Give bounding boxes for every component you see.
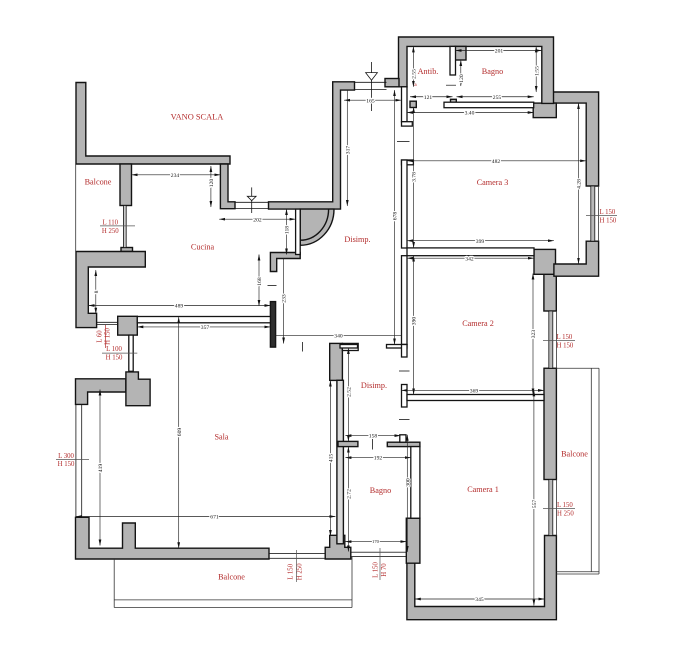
svg-text:Camera 2: Camera 2 (462, 319, 494, 328)
svg-text:323: 323 (531, 330, 537, 339)
svg-text:Camera 1: Camera 1 (467, 485, 499, 494)
svg-text:192: 192 (374, 456, 383, 462)
svg-text:357: 357 (201, 325, 210, 331)
svg-text:170: 170 (372, 539, 380, 544)
svg-text:H 150: H 150 (58, 461, 75, 468)
svg-text:165: 165 (366, 98, 375, 104)
svg-text:Disimp.: Disimp. (344, 235, 370, 244)
svg-text:3.78: 3.78 (412, 172, 418, 182)
svg-text:VANO SCALA: VANO SCALA (171, 113, 224, 122)
svg-text:390: 390 (412, 317, 418, 326)
svg-text:H 70: H 70 (381, 563, 388, 577)
svg-text:Sala: Sala (214, 433, 228, 442)
svg-text:419: 419 (98, 464, 104, 473)
svg-text:202: 202 (253, 217, 262, 223)
svg-text:Bagno: Bagno (482, 67, 503, 76)
svg-text:233: 233 (282, 294, 288, 303)
svg-text:H 150: H 150 (557, 342, 574, 349)
svg-text:L 60: L 60 (97, 330, 104, 343)
svg-text:Bagno: Bagno (370, 486, 391, 495)
svg-text:8: 8 (94, 290, 100, 293)
svg-text:L 300: L 300 (58, 453, 74, 460)
svg-text:L 150: L 150 (557, 502, 573, 509)
svg-text:3.40: 3.40 (465, 111, 475, 117)
svg-text:H 150: H 150 (106, 355, 123, 362)
svg-text:201: 201 (495, 49, 504, 55)
svg-text:120: 120 (459, 74, 465, 83)
svg-text:Camera 3: Camera 3 (477, 178, 509, 187)
svg-text:Disimp.: Disimp. (361, 381, 387, 390)
svg-text:234: 234 (171, 173, 180, 179)
svg-text:4.28: 4.28 (577, 179, 583, 189)
svg-text:Balcone: Balcone (85, 178, 112, 187)
svg-text:H 250: H 250 (297, 563, 304, 580)
svg-text:369: 369 (470, 389, 479, 395)
svg-text:609: 609 (177, 428, 183, 437)
svg-text:300: 300 (405, 478, 411, 487)
svg-text:678: 678 (393, 212, 399, 221)
svg-text:399: 399 (476, 239, 485, 245)
svg-text:2.72: 2.72 (347, 489, 353, 499)
svg-text:118: 118 (285, 226, 291, 234)
svg-text:a: a (414, 82, 417, 88)
svg-text:Balcone: Balcone (561, 450, 588, 459)
svg-text:120: 120 (209, 179, 215, 188)
svg-text:L 100: L 100 (106, 346, 122, 353)
svg-text:340: 340 (334, 334, 343, 340)
svg-text:H 250: H 250 (557, 510, 574, 517)
svg-text:121: 121 (424, 95, 433, 101)
svg-text:317: 317 (345, 146, 351, 155)
svg-text:345: 345 (475, 597, 484, 603)
svg-text:1.55: 1.55 (534, 66, 540, 76)
svg-text:H 250: H 250 (102, 228, 119, 235)
svg-text:482: 482 (492, 159, 501, 165)
svg-text:255: 255 (493, 95, 502, 101)
svg-text:489: 489 (175, 304, 184, 310)
svg-text:Antib.: Antib. (418, 67, 439, 76)
svg-text:671: 671 (210, 515, 219, 521)
svg-text:H 150: H 150 (600, 217, 617, 224)
svg-text:2.55: 2.55 (412, 69, 418, 79)
svg-text:Balcone: Balcone (218, 573, 245, 582)
svg-text:158: 158 (369, 434, 378, 440)
svg-text:168: 168 (257, 277, 263, 286)
svg-text:L 150: L 150 (600, 209, 616, 216)
svg-text:L 150: L 150 (557, 334, 573, 341)
svg-text:L 150: L 150 (373, 562, 380, 578)
svg-text:557: 557 (532, 500, 538, 509)
svg-text:Cucina: Cucina (191, 243, 215, 252)
svg-text:L 150: L 150 (288, 563, 295, 579)
svg-text:415: 415 (329, 454, 335, 463)
svg-text:342: 342 (465, 256, 474, 262)
svg-text:2.52: 2.52 (347, 387, 353, 397)
